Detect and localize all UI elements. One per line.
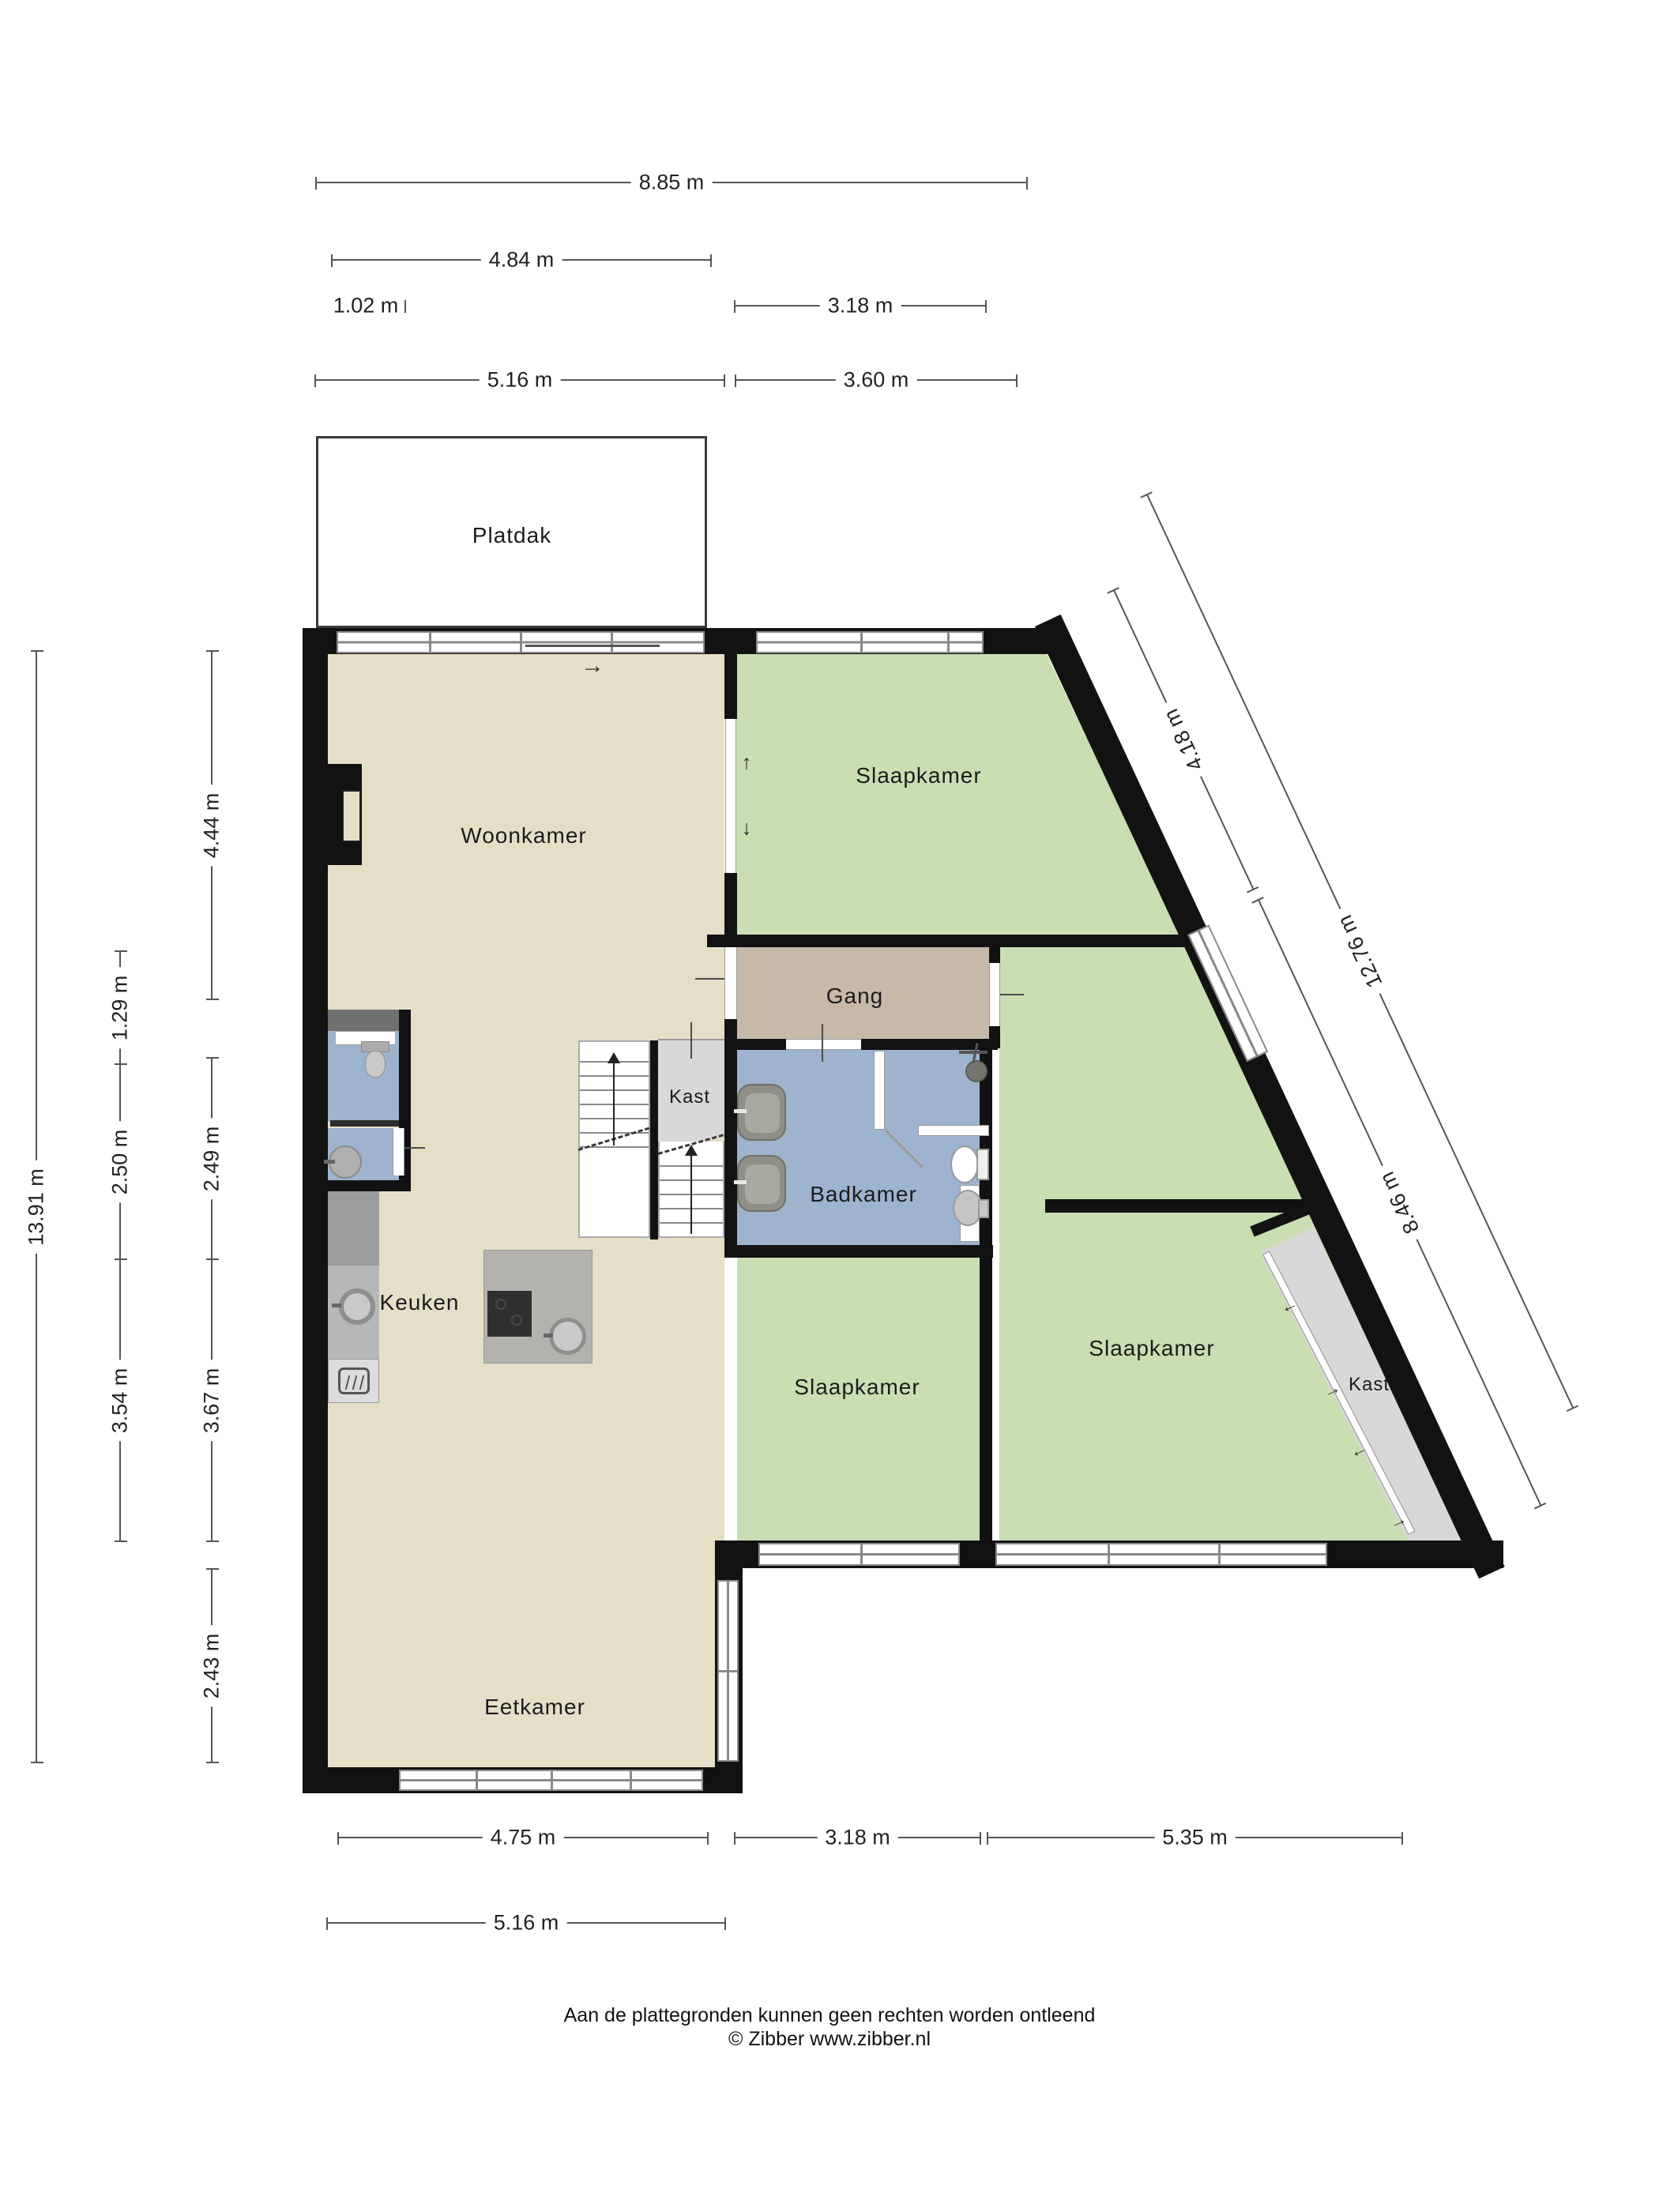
room-label-woonkamer: Woonkamer (461, 823, 586, 848)
dim-top-102: 1.02 m (326, 305, 405, 307)
dim-left-354: 3.54 m (119, 1259, 121, 1541)
room-label-slaapkamer-mid: Slaapkamer (794, 1375, 920, 1400)
duct-block (328, 1010, 399, 1031)
dim-top-360: 3.60 m (735, 379, 1017, 381)
room-label-platdak: Platdak (472, 523, 551, 548)
dim-bottom-475: 4.75 m (338, 1837, 708, 1838)
dim-label: 2.43 m (199, 1625, 225, 1706)
sliding-door-woon-slaap (725, 719, 736, 873)
wall-diagonal-bottom-patch (1450, 1540, 1503, 1568)
dim-bottom-318: 3.18 m (735, 1837, 980, 1838)
dim-label: 5.16 m (486, 1910, 567, 1936)
dim-label: 4.84 m (481, 247, 562, 273)
dim-left-129: 1.29 m (119, 951, 121, 1064)
room-label-keuken: Keuken (380, 1290, 460, 1315)
island-sink-faucet (544, 1334, 553, 1337)
wall-gang-bottom (737, 1039, 998, 1050)
dim-label: 4.75 m (483, 1825, 564, 1851)
shower-valve (959, 1051, 987, 1054)
dim-label: 5.16 m (480, 367, 561, 393)
dim-label: 5.35 m (1154, 1825, 1236, 1851)
copyright-text: © Zibber www.zibber.nl (728, 2028, 931, 2051)
room-badkamer-floor (737, 1048, 980, 1245)
entry-arrow-icon: → (581, 653, 604, 679)
dim-label: 3.54 m (107, 1360, 134, 1441)
shower-head-icon (965, 1060, 987, 1082)
window-mullion (947, 631, 950, 653)
oven-steam-line (345, 1375, 350, 1390)
window-bottom-right (995, 1543, 1327, 1566)
wall-woon-slaap-upper (724, 654, 737, 719)
window-mullion (1218, 1543, 1221, 1566)
window-mullion (551, 1770, 553, 1791)
wall-wc-bottom (328, 1180, 411, 1191)
window-mullion (611, 631, 613, 653)
dim-label: 2.50 m (107, 1121, 134, 1202)
dim-label: 4.44 m (199, 784, 225, 866)
sink-basin (745, 1093, 780, 1133)
dim-label: 3.18 m (820, 293, 901, 319)
dim-top-318: 3.18 m (735, 305, 986, 307)
entry-door-track (525, 645, 660, 647)
dim-label: 8.85 m (631, 170, 713, 196)
dim-left-243: 2.43 m (211, 1569, 213, 1762)
dim-left-1391: 13.91 m (36, 651, 37, 1762)
wall-badkamer-right (980, 1048, 992, 1540)
dim-left-367: 3.67 m (211, 1259, 213, 1541)
dim-label: 4.18 m (1155, 698, 1213, 782)
window-mullion (520, 631, 522, 653)
room-label-eetkamer: Eetkamer (484, 1695, 585, 1720)
slide-arrow-down-icon: ↓ (742, 816, 752, 841)
cooktop-burner (495, 1299, 506, 1310)
door-woonkamer-gang (724, 947, 737, 1019)
sink-faucet (734, 1180, 747, 1184)
dim-top-516: 5.16 m (315, 379, 724, 381)
room-label-slaapkamer-right: Slaapkamer (1089, 1336, 1214, 1361)
bidet-neck (978, 1199, 989, 1218)
window-mullion (429, 631, 431, 653)
window-top-left (337, 631, 705, 653)
oven-icon (338, 1367, 370, 1394)
oven-block (328, 1359, 379, 1403)
washbasin-faucet (324, 1160, 335, 1164)
window-bottom-mid (758, 1543, 960, 1566)
dim-left-250: 2.50 m (119, 1064, 121, 1259)
cooktop-burner (511, 1315, 522, 1326)
oven-steam-line (352, 1375, 357, 1390)
room-label-gang: Gang (826, 984, 884, 1009)
window-mullion (860, 631, 863, 653)
dim-bottom-535: 5.35 m (987, 1837, 1402, 1838)
slide-arrow-up-icon: ↑ (742, 750, 752, 775)
stairs-up-arrow (608, 1052, 620, 1063)
door-swing-tick (822, 1024, 823, 1062)
toilet-icon (950, 1145, 979, 1183)
toilet-bowl (365, 1051, 386, 1078)
door-washroom (393, 1128, 404, 1176)
door-swing-tick (690, 1022, 692, 1059)
window-mullion (860, 1543, 863, 1566)
kitchen-sink-faucet (332, 1303, 341, 1307)
dim-label: 3.60 m (836, 367, 917, 393)
window-eetkamer-right (717, 1580, 739, 1762)
stairs-direction-line (613, 1063, 615, 1145)
disclaimer-text: Aan de plattegronden kunnen geen rechten… (564, 2004, 1096, 2027)
shower-screen (918, 1125, 989, 1136)
door-swing-tick (1000, 994, 1024, 995)
island-sink-icon (549, 1318, 586, 1355)
stairs-up-arrow (685, 1145, 698, 1156)
room-label-badkamer: Badkamer (810, 1182, 917, 1207)
dim-label: 3.67 m (199, 1360, 225, 1441)
wall-badkamer-bottom (724, 1245, 993, 1258)
room-label-slaapkamer-top: Slaapkamer (856, 763, 981, 788)
dim-label: 2.49 m (199, 1118, 225, 1199)
dim-top-484: 4.84 m (332, 259, 711, 261)
floorplan-canvas: Platdak (0, 0, 1659, 2212)
dim-label: 1.29 m (107, 967, 134, 1048)
wall-stair-middle (650, 1040, 658, 1240)
dim-label: 12.76 m (1329, 904, 1392, 999)
kitchen-tall-cabinet (328, 1191, 379, 1266)
window-mullion (476, 1770, 478, 1791)
sink-icon (737, 1084, 786, 1141)
window-eetkamer-bottom (399, 1770, 703, 1791)
dim-left-249: 2.49 m (211, 1058, 213, 1259)
sink-faucet (734, 1109, 747, 1113)
door-gang-slaapkamer-right (989, 963, 1000, 1026)
wall-stair-right (724, 1040, 737, 1247)
room-eetkamer-floor (328, 1568, 715, 1767)
dim-label: 3.18 m (817, 1825, 898, 1851)
room-label-kast-mid: Kast (669, 1086, 710, 1108)
room-label-kast-right: Kast (1349, 1374, 1390, 1396)
wall-slaapright-partial (1045, 1199, 1311, 1213)
wall-left (303, 628, 328, 1793)
wall-wc-divider (330, 1120, 399, 1127)
sink-icon (737, 1155, 786, 1212)
dim-left-444: 4.44 m (211, 651, 213, 999)
sink-basin (745, 1164, 780, 1204)
shower-partition (874, 1051, 885, 1130)
dim-label: 13.91 m (24, 1161, 50, 1254)
door-swing-tick (404, 1147, 425, 1149)
window-mullion (630, 1770, 632, 1791)
window-mullion (717, 1670, 739, 1672)
wall-slaaptop-bottom (707, 935, 1197, 947)
dim-label: 1.02 m (325, 293, 407, 319)
dim-top-885: 8.85 m (316, 182, 1027, 183)
stairs-direction-line (690, 1155, 692, 1234)
oven-steam-line (359, 1375, 364, 1390)
chimney-niche (342, 790, 361, 842)
dim-bottom-516: 5.16 m (327, 1922, 725, 1924)
door-swing-tick (695, 978, 724, 980)
toilet-tank (976, 1149, 989, 1180)
window-top-right (756, 631, 984, 653)
kitchen-sink-icon (339, 1288, 375, 1325)
dim-label: 8.46 m (1371, 1161, 1428, 1245)
window-mullion (1108, 1543, 1110, 1566)
cooktop-icon (487, 1291, 532, 1337)
door-gang-badkamer (786, 1039, 861, 1050)
